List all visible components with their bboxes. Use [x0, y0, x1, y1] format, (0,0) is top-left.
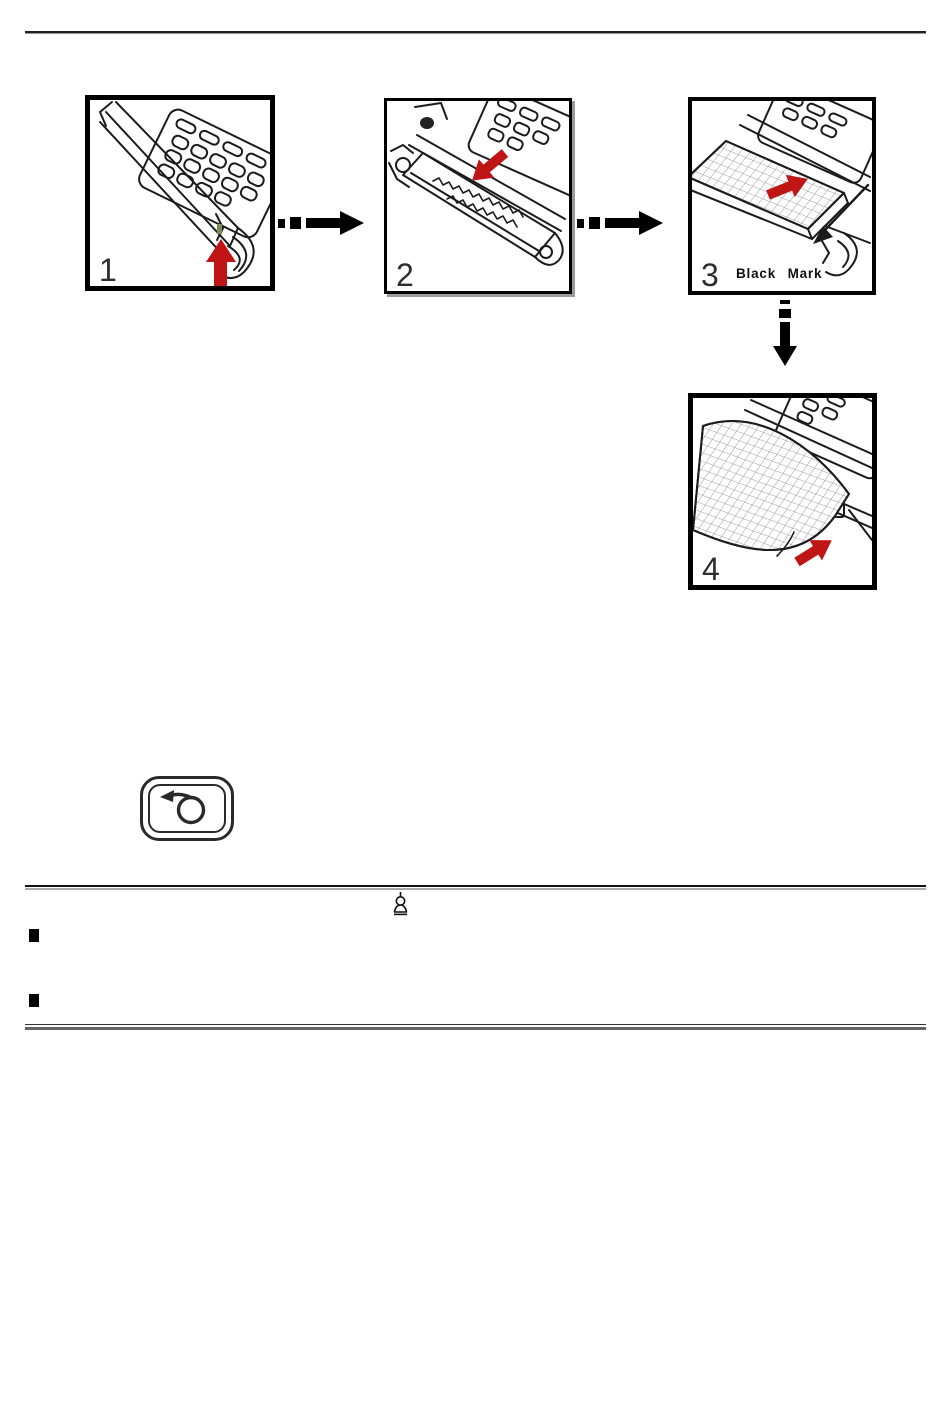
device-illustration-step1 — [90, 100, 270, 286]
top-rule — [25, 31, 926, 34]
feed-loop-arrow-icon — [146, 783, 224, 831]
dashed-arrow-right-icon — [577, 206, 663, 240]
step-panel-4: 4 — [688, 393, 877, 590]
black-mark-label: Black Mark — [736, 266, 822, 281]
dashed-arrow-down-icon — [770, 300, 800, 372]
note-divider-bottom — [25, 1024, 926, 1031]
keyboard-detail — [466, 101, 569, 198]
paper-sheet — [693, 421, 849, 556]
note-bullet — [29, 929, 39, 942]
step-number: 1 — [99, 254, 117, 286]
step-panel-3: 3 Black Mark — [688, 97, 876, 295]
keyboard-detail — [136, 106, 270, 240]
step-number: 2 — [396, 259, 414, 291]
device-illustration-step3 — [692, 101, 872, 291]
step-number: 4 — [702, 553, 720, 585]
feed-key-icon — [140, 776, 234, 841]
latch-button — [217, 224, 222, 234]
step-panel-2: 2 — [384, 98, 572, 294]
manual-page: 1 — [0, 0, 950, 1409]
dashed-arrow-right-icon — [278, 206, 364, 240]
note-bullet — [29, 994, 39, 1007]
note-icon — [392, 891, 409, 916]
device-illustration-step4 — [693, 398, 872, 585]
step-panel-1: 1 — [85, 95, 275, 291]
note-divider-top — [25, 885, 926, 890]
device-illustration-step2 — [387, 101, 569, 291]
step-number: 3 — [701, 259, 719, 291]
